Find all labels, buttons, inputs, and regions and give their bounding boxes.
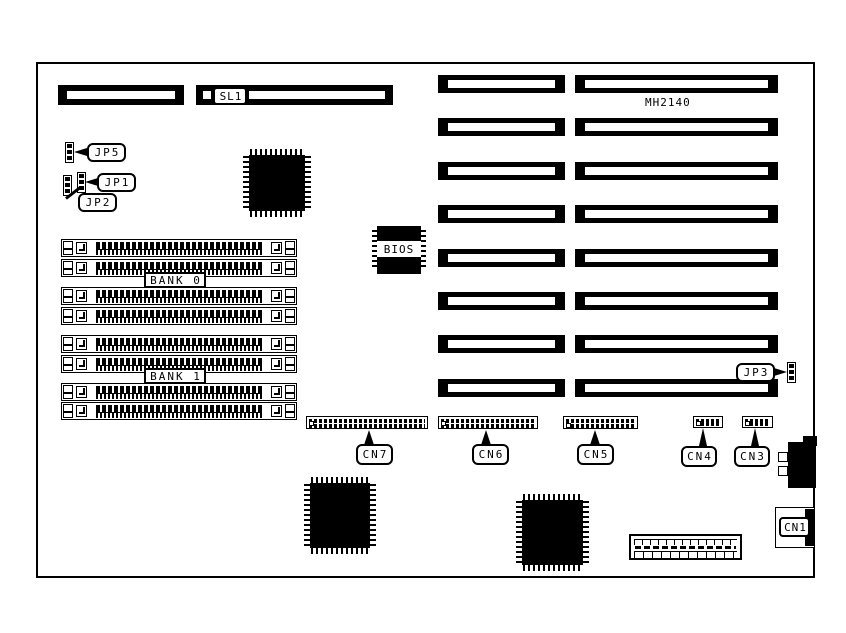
- cn5-callout-tail: [590, 430, 600, 445]
- simm-socket: [61, 287, 297, 305]
- isa-slot: [438, 292, 565, 310]
- isa-slot: [438, 162, 565, 180]
- bios-pins-right: [421, 230, 426, 270]
- isa-slot: [438, 335, 565, 353]
- isa-slot: [438, 249, 565, 267]
- cn4-label-text: CN4: [685, 451, 713, 462]
- isa-slot: [575, 335, 778, 353]
- keyboard-connector-step: [803, 436, 817, 446]
- jp5-callout-tail: [74, 148, 87, 156]
- jp5-label: JP5: [87, 143, 126, 162]
- chipset-chip: [243, 149, 311, 217]
- isa-slot: [575, 162, 778, 180]
- isa-slot: [438, 75, 565, 93]
- chip-pins-right: [583, 501, 589, 564]
- io-chip-left: [304, 477, 376, 554]
- jp1-label-text: JP1: [103, 177, 131, 188]
- cn1-label: CN1: [779, 517, 810, 537]
- cn5-label: CN5: [577, 444, 614, 465]
- io-chip-right: [516, 494, 589, 571]
- keyboard-connector-tab: [778, 452, 788, 462]
- isa-slot: [575, 249, 778, 267]
- chip-pins-right: [370, 484, 376, 547]
- cn4-label: CN4: [681, 446, 717, 467]
- sl1-label: SL1: [213, 87, 247, 105]
- chip-pins-bottom: [250, 211, 304, 217]
- simm-socket: [61, 239, 297, 257]
- jp3-callout-tail: [774, 368, 787, 376]
- jp2-label: JP2: [78, 193, 117, 212]
- bank0-label: BANK 0: [144, 272, 206, 288]
- isa-slot: [438, 118, 565, 136]
- isa-slot: [575, 292, 778, 310]
- cn3-label: CN3: [734, 446, 770, 467]
- isa-slot: [575, 118, 778, 136]
- top-left-slot: [58, 85, 184, 105]
- simm-socket: [61, 307, 297, 325]
- cn7-connector: [306, 416, 428, 429]
- chip-body: [522, 500, 583, 565]
- cn3-label-text: CN3: [738, 451, 766, 462]
- simm-socket: [61, 402, 297, 420]
- keyboard-connector: [788, 442, 816, 488]
- cn3-callout-tail: [751, 428, 759, 446]
- jp5-jumper: [65, 142, 74, 163]
- isa-slot: [575, 75, 778, 93]
- chip-body: [310, 483, 370, 548]
- cn7-callout-tail: [364, 430, 374, 445]
- jp1-label: JP1: [97, 173, 136, 192]
- simm-socket: [61, 335, 297, 353]
- jp3-jumper: [787, 362, 796, 383]
- jp3-label: JP3: [736, 363, 775, 382]
- chip-pins-bottom: [311, 548, 369, 554]
- board-model-text: MH2140: [645, 97, 691, 108]
- simm-socket: [61, 383, 297, 401]
- chip-pins-right: [305, 156, 311, 210]
- cn6-label-text: CN6: [477, 449, 505, 460]
- isa-slot: [438, 205, 565, 223]
- bank0-label-text: BANK 0: [148, 275, 202, 286]
- keyboard-connector-tab: [778, 466, 788, 476]
- jp5-label-text: JP5: [93, 147, 121, 158]
- chip-pins-bottom: [523, 565, 582, 571]
- sl1-label-text: SL1: [218, 91, 243, 102]
- power-connector: [629, 534, 742, 560]
- isa-slot: [438, 379, 565, 397]
- jp2-label-text: JP2: [84, 197, 112, 208]
- chip-body: [249, 155, 305, 211]
- cn5-label-text: CN5: [582, 449, 610, 460]
- cn6-label: CN6: [472, 444, 509, 465]
- sl1-pin1-marker: [203, 91, 211, 99]
- jp3-label-text: JP3: [742, 367, 770, 378]
- cn6-callout-tail: [481, 430, 491, 445]
- cn3-connector: [742, 416, 773, 428]
- cn7-label: CN7: [356, 444, 393, 465]
- bank1-label-text: BANK 1: [148, 371, 202, 382]
- bios-chip: BIOS: [372, 226, 426, 274]
- cn1-label-text: CN1: [782, 522, 807, 533]
- cn7-label-text: CN7: [361, 449, 389, 460]
- bios-label: BIOS: [377, 241, 421, 257]
- motherboard-diagram: SL1 JP5 JP1 JP2 BIOS MH2140 JP3: [0, 0, 846, 633]
- isa-slot: [575, 205, 778, 223]
- cn4-connector: [693, 416, 723, 428]
- bios-label-text: BIOS: [384, 244, 415, 255]
- cn5-connector: [563, 416, 638, 429]
- bank1-label: BANK 1: [144, 368, 206, 384]
- cn6-connector: [438, 416, 538, 429]
- cn4-callout-tail: [699, 428, 707, 446]
